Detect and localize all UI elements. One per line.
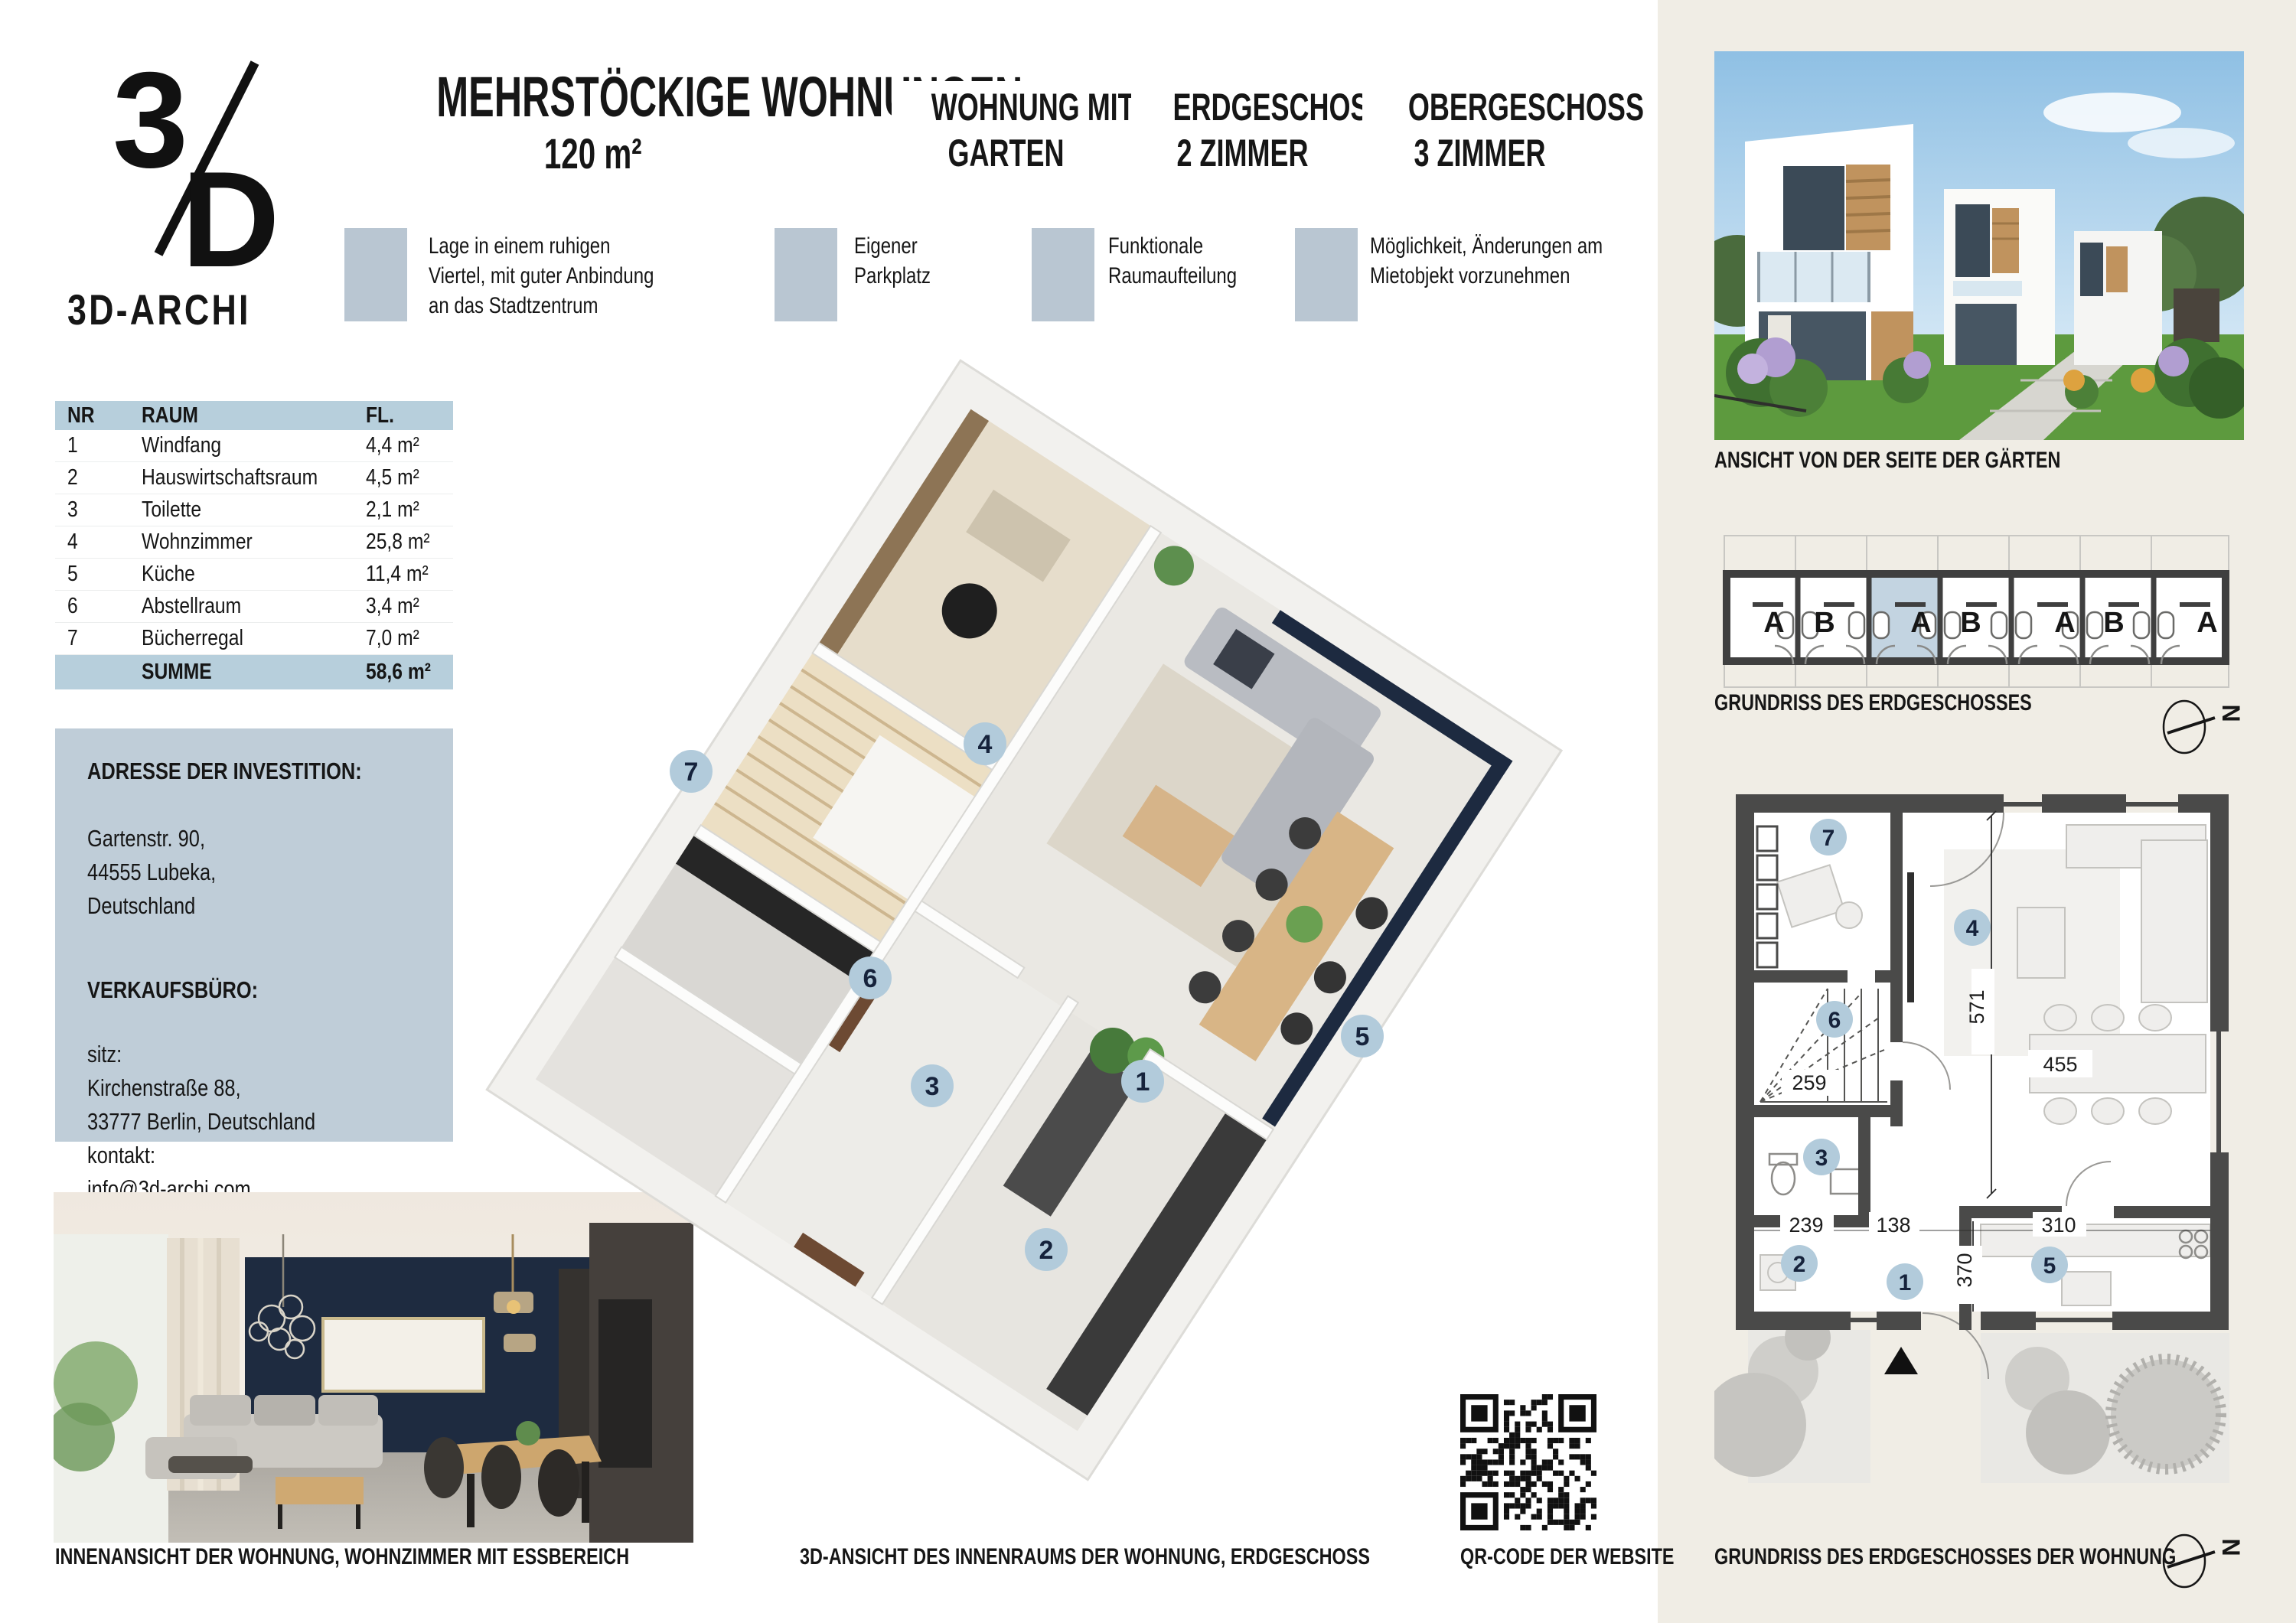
column-ground-floor: ERDGESCHOSS 2 ZIMMER bbox=[1131, 81, 1353, 176]
svg-text:5: 5 bbox=[1355, 1022, 1370, 1051]
table-row: 4 Wohnzimmer 25,8 m² bbox=[55, 526, 453, 559]
entrance-arrow-icon bbox=[1884, 1347, 1918, 1374]
caption-plan2d: GRUNDRISS DES ERDGESCHOSSES DER WOHNUNG bbox=[1714, 1544, 2296, 1570]
column-upper-floor: OBERGESCHOSS 3 ZIMMER bbox=[1362, 81, 1596, 176]
feature-square-changes bbox=[1295, 228, 1358, 321]
caption-exterior: ANSICHT VON DER SEITE DER GÄRTEN bbox=[1714, 448, 2158, 474]
svg-text:1: 1 bbox=[1136, 1067, 1150, 1097]
svg-text:259: 259 bbox=[1792, 1071, 1826, 1094]
svg-text:2: 2 bbox=[1039, 1236, 1054, 1265]
caption-interior: INNENANSICHT DER WOHNUNG, WOHNZIMMER MIT… bbox=[55, 1544, 791, 1570]
table-row: 2 Hauswirtschaftsraum 4,5 m² bbox=[55, 462, 453, 494]
feature-square-location bbox=[344, 228, 407, 321]
feature-layout: Funktionale Raumaufteilung bbox=[1108, 231, 1322, 291]
svg-text:2: 2 bbox=[1793, 1252, 1806, 1277]
floor-plan-3d: 7 4 6 3 1 5 2 bbox=[459, 321, 1569, 1538]
table-row: 7 Bücherregal 7,0 m² bbox=[55, 623, 453, 655]
svg-text:A: A bbox=[2054, 607, 2075, 639]
logo-d: D bbox=[181, 143, 280, 275]
svg-text:6: 6 bbox=[863, 964, 878, 993]
page-title: MEHRSTÖCKIGE WOHNUNGEN bbox=[298, 67, 888, 127]
north-arrow-icon: N bbox=[2152, 687, 2252, 760]
feature-changes: Möglichkeit, Änderungen am Mietobjekt vo… bbox=[1370, 231, 1699, 291]
svg-text:3: 3 bbox=[1815, 1146, 1828, 1171]
page-area: 120 m² bbox=[298, 129, 888, 178]
svg-text:4: 4 bbox=[978, 730, 993, 759]
logo-3: 3 bbox=[113, 46, 188, 196]
svg-text:1: 1 bbox=[1899, 1270, 1912, 1295]
svg-text:138: 138 bbox=[1876, 1214, 1910, 1237]
svg-text:A: A bbox=[2197, 607, 2217, 639]
svg-text:571: 571 bbox=[1965, 989, 1988, 1024]
svg-text:A: A bbox=[1910, 607, 1931, 639]
svg-text:B: B bbox=[1814, 607, 1835, 639]
address-block: ADRESSE DER INVESTITION: Gartenstr. 90, … bbox=[55, 728, 453, 1142]
svg-text:5: 5 bbox=[2043, 1253, 2056, 1279]
feature-location: Lage in einem ruhigen Viertel, mit guter… bbox=[429, 231, 729, 321]
company-logo-mark: 3 D bbox=[73, 46, 333, 275]
feature-square-parking bbox=[775, 228, 837, 321]
house-middle bbox=[1944, 189, 2055, 365]
feature-parking: Eigener Parkplatz bbox=[854, 231, 977, 291]
caption-qr: QR-CODE DER WEBSITE bbox=[1460, 1544, 1734, 1570]
apartment-3d-footprint bbox=[487, 360, 1561, 1480]
svg-text:455: 455 bbox=[2043, 1053, 2077, 1076]
table-row: 6 Abstellraum 3,4 m² bbox=[55, 591, 453, 623]
svg-text:B: B bbox=[1960, 607, 1981, 639]
floor-plan-2d: 571 455 259 239 138 310 370 7 4 6 3 2 1 … bbox=[1714, 781, 2254, 1492]
column-garden: WOHNUNG MIT GARTEN bbox=[892, 81, 1121, 176]
svg-text:3: 3 bbox=[925, 1072, 940, 1101]
table-row: 5 Küche 11,4 m² bbox=[55, 559, 453, 591]
svg-text:370: 370 bbox=[1953, 1253, 1976, 1287]
svg-text:N: N bbox=[2217, 704, 2245, 722]
caption-plan3d: 3D-ANSICHT DES INNENRAUMS DER WOHNUNG, E… bbox=[800, 1544, 1531, 1570]
svg-text:7: 7 bbox=[1822, 826, 1835, 851]
svg-text:6: 6 bbox=[1828, 1008, 1841, 1033]
svg-text:310: 310 bbox=[2041, 1214, 2076, 1237]
svg-text:A: A bbox=[1763, 607, 1784, 639]
room-table-header: NR RAUM FL. bbox=[55, 401, 453, 430]
caption-schematic: GRUNDRISS DES ERDGESCHOSSES bbox=[1714, 690, 2122, 716]
svg-text:239: 239 bbox=[1789, 1214, 1823, 1237]
svg-text:B: B bbox=[2103, 607, 2124, 639]
exterior-photo bbox=[1714, 51, 2244, 440]
svg-text:4: 4 bbox=[1966, 916, 1979, 941]
table-sum-row: SUMME 58,6 m² bbox=[55, 655, 453, 689]
feature-square-layout bbox=[1032, 228, 1094, 321]
table-row: 3 Toilette 2,1 m² bbox=[55, 494, 453, 526]
table-row: 1 Windfang 4,4 m² bbox=[55, 430, 453, 462]
svg-text:7: 7 bbox=[684, 758, 699, 787]
presentation-board: 3 D 3D-ARCHI MEHRSTÖCKIGE WOHNUNGEN 120 … bbox=[0, 0, 2296, 1623]
room-table: NR RAUM FL. 1 Windfang 4,4 m² 2 Hauswirt… bbox=[55, 401, 453, 689]
logo-wordmark: 3D-ARCHI bbox=[67, 285, 297, 334]
qr-code bbox=[1460, 1394, 1596, 1530]
